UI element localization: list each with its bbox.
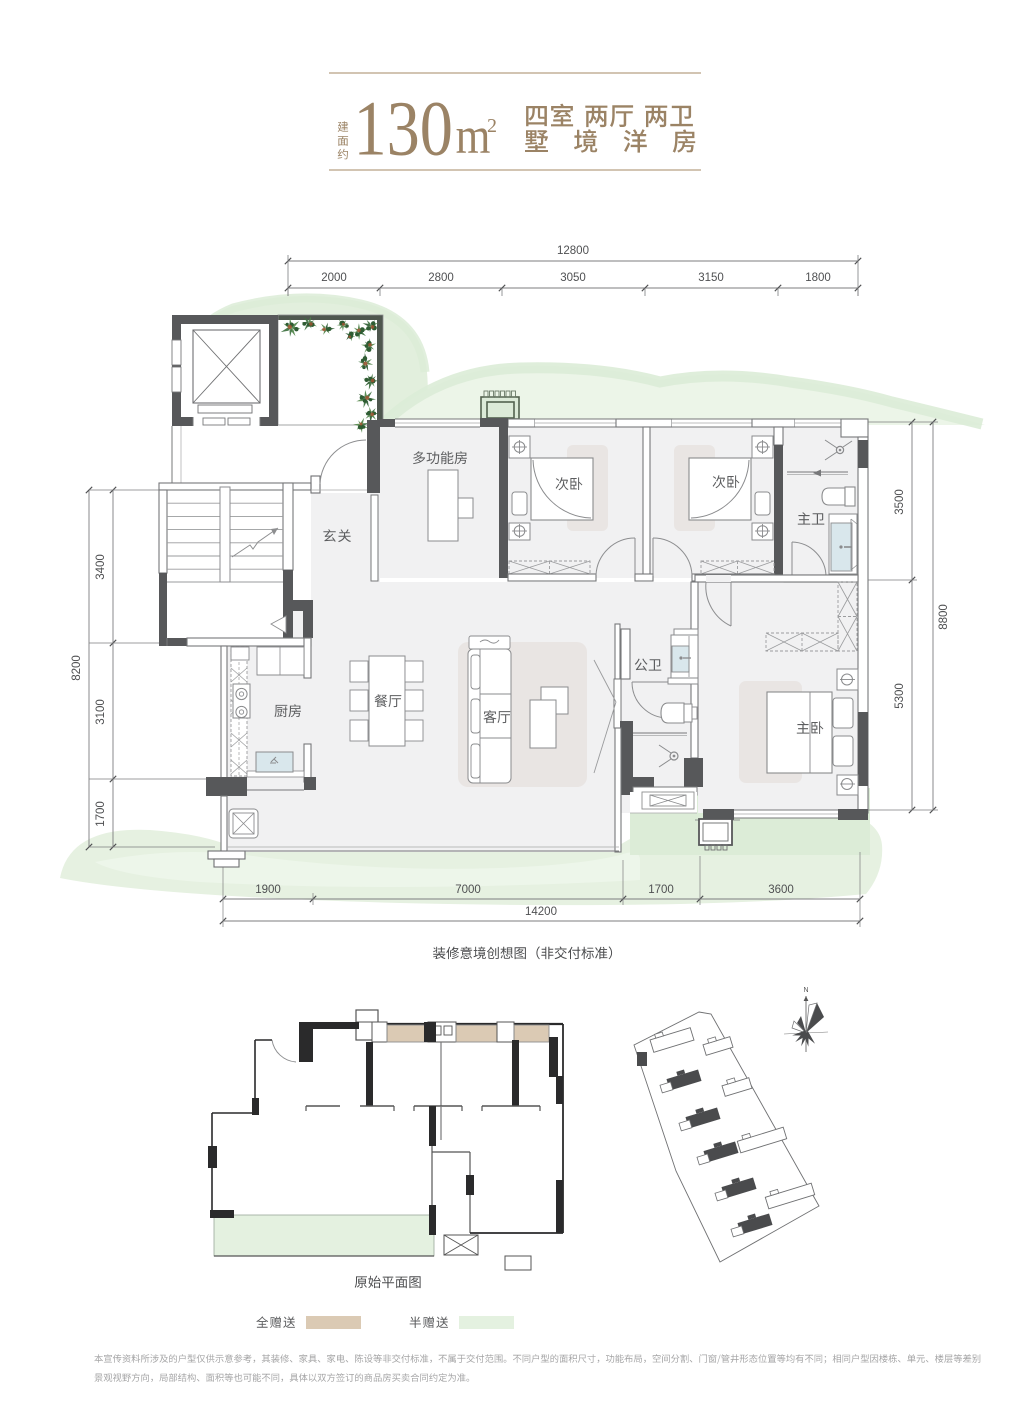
svg-text:7000: 7000 xyxy=(455,884,481,896)
svg-text:m: m xyxy=(456,108,491,165)
svg-text:2000: 2000 xyxy=(321,272,347,284)
svg-text:3150: 3150 xyxy=(698,272,724,284)
svg-text:2800: 2800 xyxy=(428,272,454,284)
svg-text:3600: 3600 xyxy=(768,884,794,896)
svg-text:5300: 5300 xyxy=(894,683,906,709)
svg-text:3100: 3100 xyxy=(95,699,107,725)
svg-text:14200: 14200 xyxy=(525,906,557,918)
svg-text:12800: 12800 xyxy=(557,245,589,257)
svg-text:130: 130 xyxy=(354,86,453,172)
svg-text:1700: 1700 xyxy=(95,801,107,827)
svg-text:1800: 1800 xyxy=(805,272,831,284)
svg-text:8800: 8800 xyxy=(938,604,950,630)
svg-text:N: N xyxy=(803,987,808,994)
svg-text:8200: 8200 xyxy=(71,655,83,681)
svg-text:2: 2 xyxy=(487,115,497,137)
svg-text:1900: 1900 xyxy=(255,884,281,896)
svg-text:3500: 3500 xyxy=(894,489,906,515)
svg-text:1700: 1700 xyxy=(648,884,674,896)
svg-text:3400: 3400 xyxy=(95,554,107,580)
svg-text:3050: 3050 xyxy=(560,272,586,284)
